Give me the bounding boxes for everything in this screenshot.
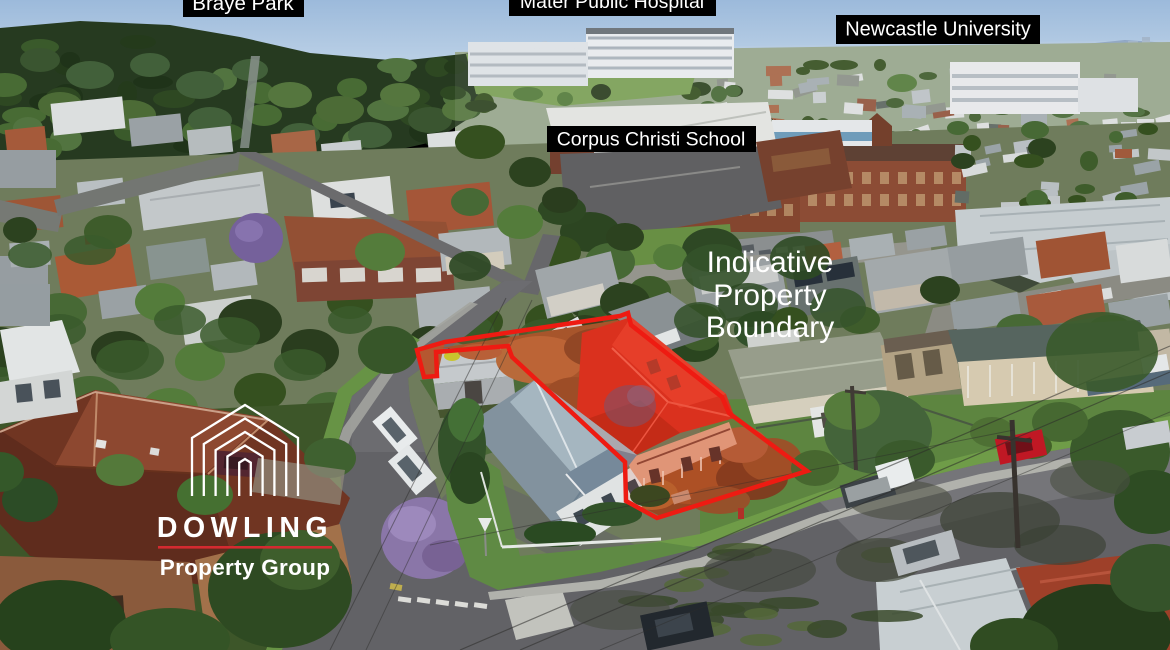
svg-text:Corpus Christi School: Corpus Christi School [557,129,746,151]
svg-text:DOWLING: DOWLING [157,512,333,544]
svg-text:Newcastle University: Newcastle University [845,19,1031,41]
svg-text:Mater Public Hospital: Mater Public Hospital [520,0,704,13]
svg-text:Braye Park: Braye Park [192,0,294,15]
svg-text:Boundary: Boundary [706,311,834,344]
svg-text:Property: Property [713,279,826,312]
svg-text:Property Group: Property Group [160,555,330,580]
svg-text:Indicative: Indicative [707,246,834,279]
